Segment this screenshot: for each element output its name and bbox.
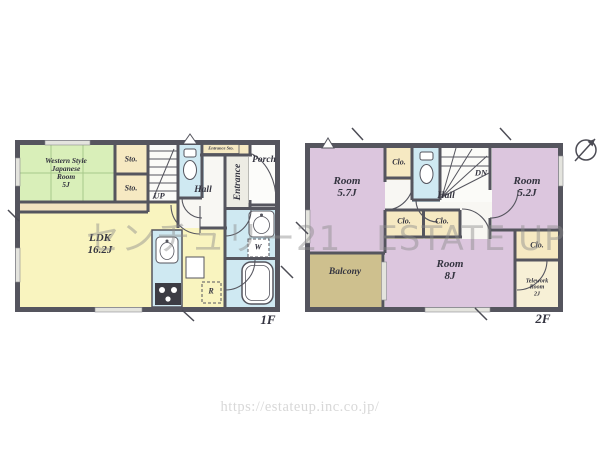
closet-b-label: Clo.	[435, 218, 449, 227]
floor1-label: 1F	[260, 313, 275, 327]
ldk-label: LDK 16.2J	[88, 233, 113, 257]
balcony-fill	[308, 253, 383, 309]
washbasin-icon	[249, 211, 274, 237]
entrance-label: Entrance	[233, 164, 243, 200]
closet-a-label: Clo.	[397, 218, 411, 227]
washer-label: W	[254, 244, 261, 253]
site-url: https://estateup.inc.co.jp/	[0, 399, 600, 416]
stove-icon	[155, 283, 181, 305]
stairs-dn-label: DN	[475, 168, 487, 177]
bathtub-icon	[242, 262, 273, 304]
closet-right-label: Clo.	[530, 242, 544, 251]
compass-icon	[575, 139, 596, 161]
room52-label: Room 5.2J	[514, 176, 541, 200]
storage-top-label: Sto.	[125, 156, 138, 165]
room8-label: Room 8J	[437, 259, 464, 283]
floorplan-drawing	[0, 0, 600, 450]
japanese-room-label: Western Style Japanese Room 5J	[45, 157, 87, 189]
telework-room-label: Telework Room 2J	[526, 278, 548, 297]
toilet1-icon	[184, 149, 197, 180]
entrance-storage-label: Entrance Sto.	[208, 147, 234, 152]
porch-label: Porch	[252, 155, 276, 165]
storage-bottom-label: Sto.	[125, 185, 138, 194]
hall1-label: Hall	[194, 185, 211, 195]
counter-box	[186, 257, 204, 278]
stairs-up-label: UP	[153, 191, 164, 200]
fridge-label: R	[208, 288, 213, 297]
floor2-label: 2F	[535, 312, 550, 326]
vent-triangle-1f	[183, 134, 197, 144]
balcony-label: Balcony	[329, 267, 361, 277]
closet-top-label: Clo.	[392, 159, 406, 168]
toilet2-icon	[420, 152, 433, 184]
porch-fill	[249, 143, 277, 207]
kitchen-counter	[152, 230, 182, 307]
hall2-label: Hall	[437, 191, 454, 201]
room57-label: Room 5.7J	[334, 176, 361, 200]
room57-fill	[308, 146, 387, 255]
floorplan-canvas: Western Style Japanese Room 5J Sto. Sto.…	[0, 0, 600, 450]
